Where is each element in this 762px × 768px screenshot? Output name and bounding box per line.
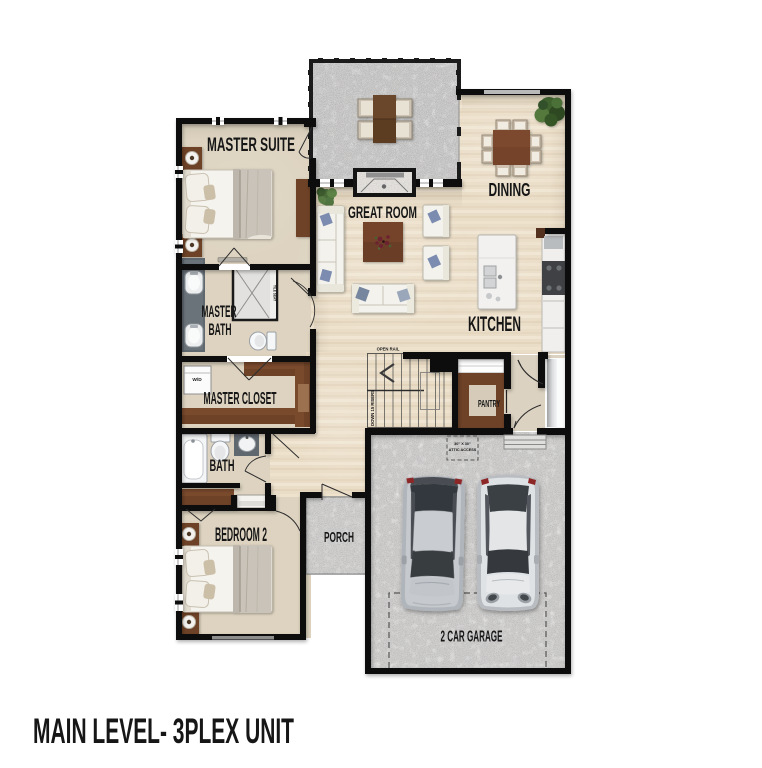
svg-text:BEDROOM 2: BEDROOM 2 bbox=[215, 525, 267, 546]
svg-text:30" X 30": 30" X 30" bbox=[454, 442, 471, 446]
svg-text:OPEN RAIL: OPEN RAIL bbox=[377, 347, 400, 352]
svg-text:BATH: BATH bbox=[209, 321, 232, 339]
svg-text:MASTER CLOSET: MASTER CLOSET bbox=[204, 388, 277, 408]
svg-text:ATTIC ACCESS: ATTIC ACCESS bbox=[449, 448, 477, 452]
svg-text:MAIN LEVEL- 3PLEX UNIT: MAIN LEVEL- 3PLEX UNIT bbox=[33, 712, 294, 751]
svg-text:KITCHEN: KITCHEN bbox=[468, 313, 521, 336]
svg-text:DINING: DINING bbox=[489, 180, 531, 200]
svg-text:2 CAR GARAGE: 2 CAR GARAGE bbox=[441, 629, 503, 646]
svg-text:PORCH: PORCH bbox=[324, 529, 354, 546]
svg-text:GREAT ROOM: GREAT ROOM bbox=[348, 203, 417, 222]
svg-text:MASTER SUITE: MASTER SUITE bbox=[207, 134, 295, 156]
svg-text:W/D: W/D bbox=[192, 377, 202, 383]
svg-text:PANTRY: PANTRY bbox=[478, 398, 500, 410]
svg-text:MASTER: MASTER bbox=[202, 303, 237, 321]
svg-text:DOWN 15 RISERS: DOWN 15 RISERS bbox=[370, 390, 375, 426]
svg-text:BATH: BATH bbox=[210, 456, 235, 475]
svg-text:TILE SEAT: TILE SEAT bbox=[273, 285, 277, 301]
